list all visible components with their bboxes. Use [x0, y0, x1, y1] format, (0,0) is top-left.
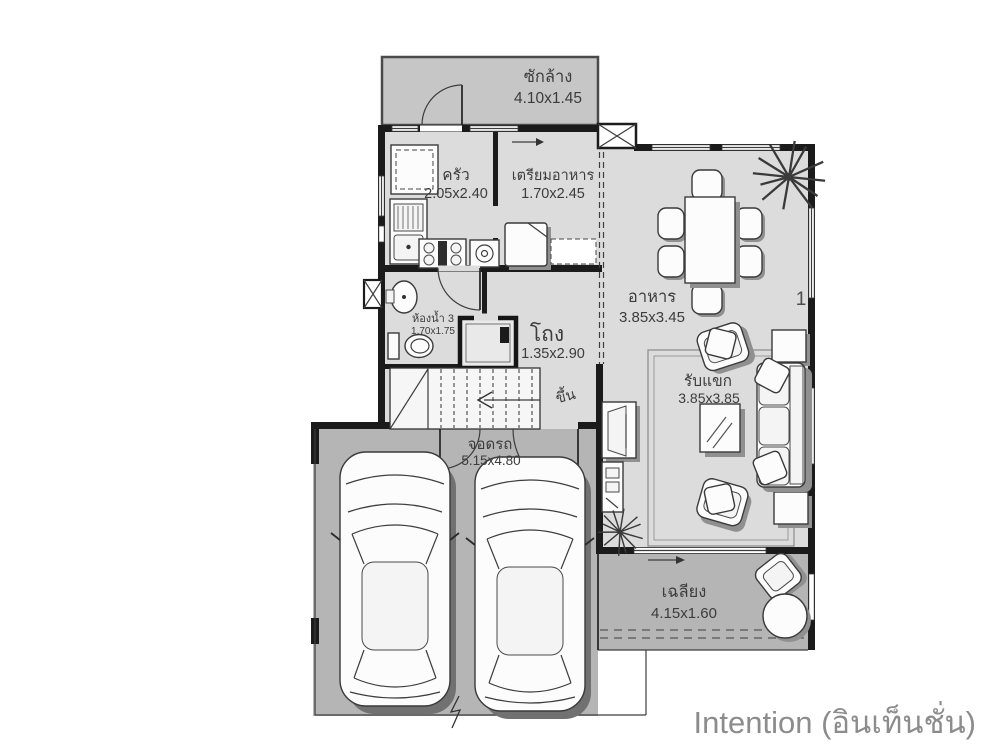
- parking-label: จอดรถ: [468, 436, 513, 453]
- window-dining-top-1: [652, 145, 710, 150]
- side-table-bottom: [774, 492, 808, 524]
- kitchen-label: ครัว: [442, 167, 469, 184]
- stove: [419, 239, 466, 268]
- prep-counter: [551, 239, 596, 264]
- plan-title: Intention (อินเท็นชั่น): [694, 701, 976, 740]
- porch-label: เฉลียง: [662, 583, 707, 601]
- car-right: [466, 457, 594, 719]
- sliding-door-porch: [634, 548, 766, 554]
- dining-table: [685, 197, 735, 283]
- refrigerator: [505, 223, 551, 270]
- hob-appliance: [470, 240, 499, 267]
- tv-icon: [608, 406, 626, 456]
- column-x-top: [598, 124, 636, 148]
- dining-size: 3.85x3.45: [619, 309, 685, 326]
- parking-size: 5.15x4.80: [461, 453, 520, 468]
- bathroom-size: 1.70x1.75: [411, 326, 455, 337]
- grid-marker-1: 1: [796, 289, 807, 310]
- column-x-left: [364, 280, 382, 308]
- laundry-size: 4.10x1.45: [514, 90, 582, 107]
- coffee-table: [700, 404, 745, 457]
- window-kitchen-left: [379, 176, 384, 216]
- window-kitchen-top: [392, 126, 418, 131]
- car-left: [331, 452, 459, 714]
- floor-plan-svg: ซักล้าง 4.10x1.45 ครัว 2.05x2.40 เตรียมอ…: [0, 0, 1000, 750]
- kitchen-size: 2.05x2.40: [424, 186, 488, 202]
- hall-label: โถง: [530, 322, 564, 346]
- hall-size: 1.35x2.90: [521, 346, 585, 362]
- porch-size: 4.15x1.60: [651, 605, 717, 622]
- shelf-unit: [602, 462, 623, 512]
- tv-console: [602, 402, 640, 462]
- living-label: รับแขก: [684, 373, 732, 390]
- window-dining-right: [809, 208, 814, 298]
- window-prep-top: [470, 126, 518, 131]
- living-size: 3.85x3.85: [678, 390, 740, 406]
- side-table-top: [772, 330, 806, 362]
- bathroom-label: ห้องน้ำ 3: [412, 310, 454, 325]
- laundry-label: ซักล้าง: [524, 68, 573, 86]
- prep-label: เตรียมอาหาร: [512, 167, 595, 184]
- dining-label: อาหาร: [628, 288, 676, 306]
- floor-plan-page: ซักล้าง 4.10x1.45 ครัว 2.05x2.40 เตรียมอ…: [0, 0, 1000, 750]
- prep-size: 1.70x2.45: [521, 186, 585, 202]
- stairs: [390, 368, 540, 429]
- window-kitchen-left-2: [379, 226, 384, 242]
- shower-closet: [460, 314, 516, 369]
